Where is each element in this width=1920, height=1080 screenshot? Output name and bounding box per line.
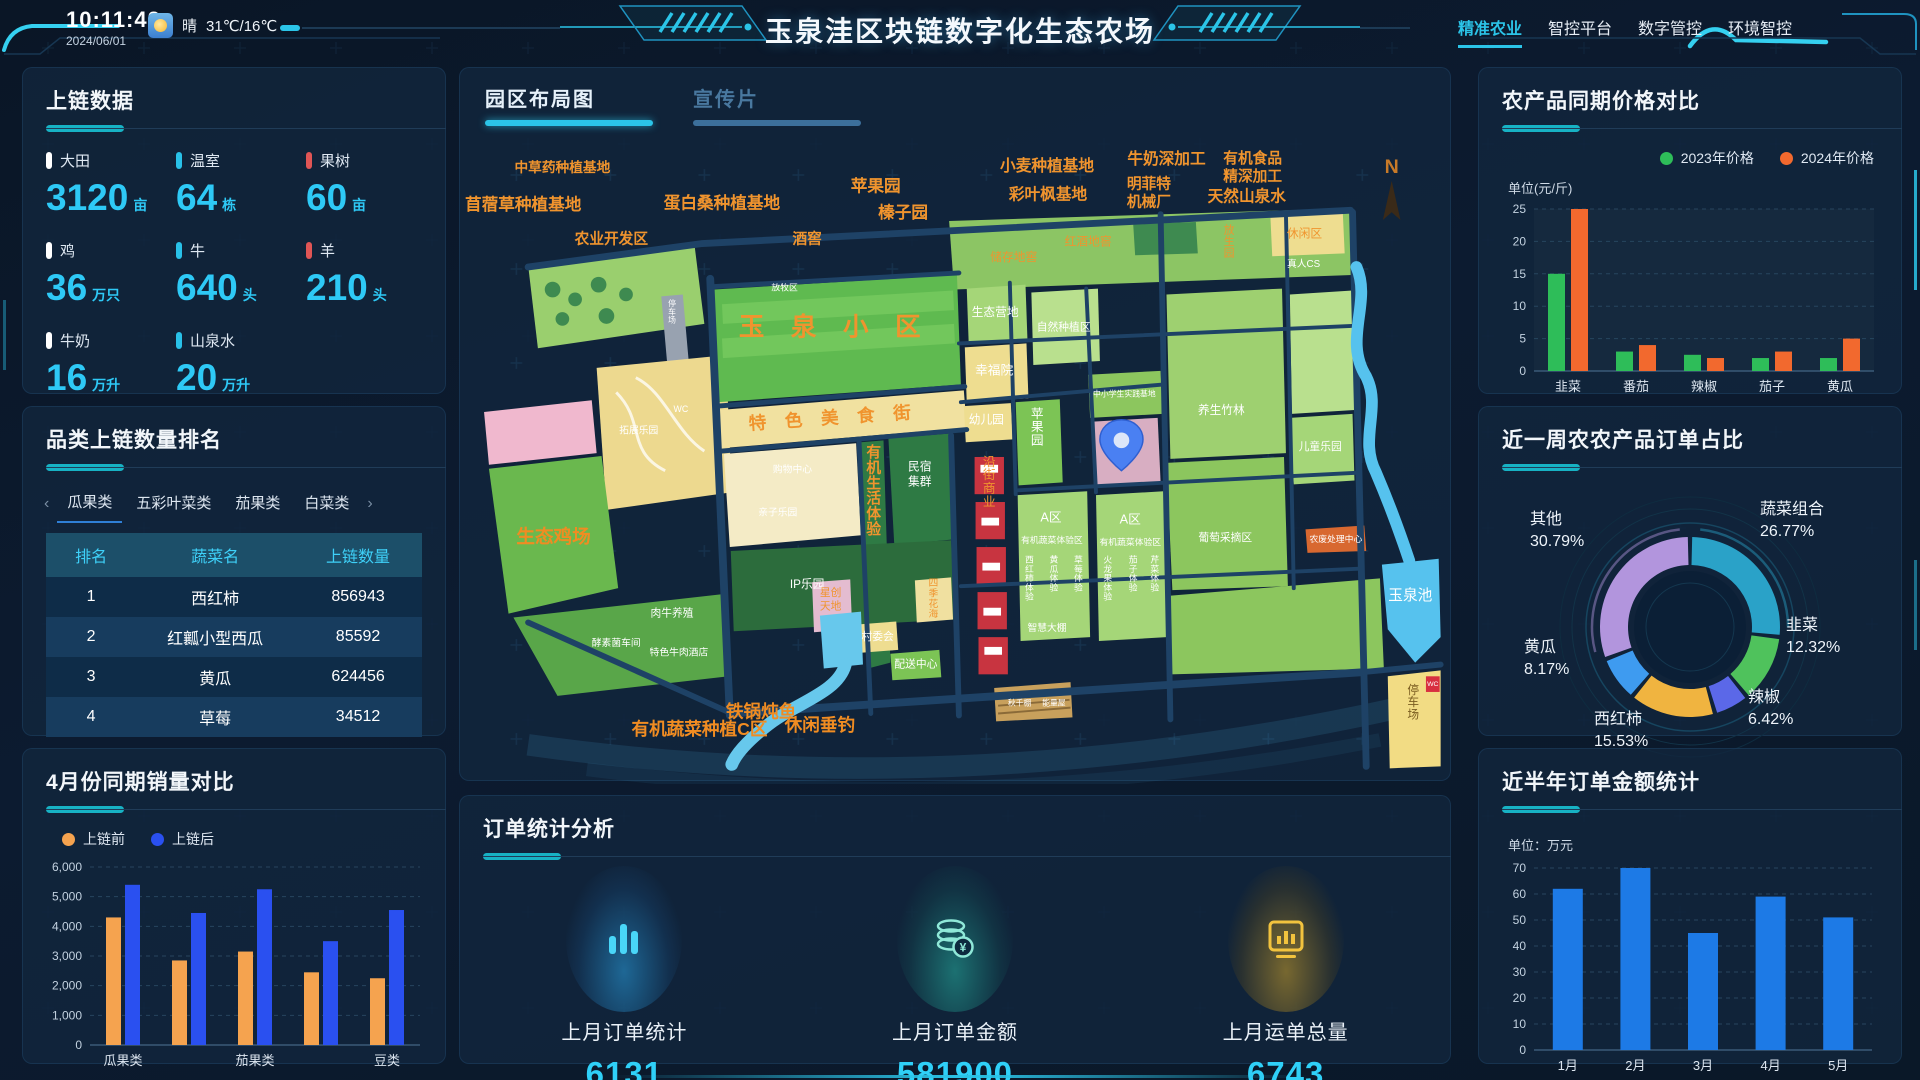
chart-svg: 0510152025韭菜番茄辣椒茄子黄瓜: [1494, 201, 1886, 405]
svg-text:韭菜: 韭菜: [1555, 379, 1581, 394]
map-label: 真人CS: [1287, 257, 1321, 270]
map-label: 蛋白桑种植基地: [664, 192, 781, 212]
item-unit: 万只: [92, 287, 120, 303]
svg-text:5月: 5月: [1828, 1058, 1848, 1073]
bar: [323, 941, 338, 1045]
bar: [106, 917, 121, 1045]
map-label: 配送中心: [894, 657, 937, 670]
chain-data-item: 羊210头: [306, 240, 436, 306]
column-header: 蔬菜名: [136, 543, 294, 567]
svg-text:番茄: 番茄: [1623, 379, 1649, 394]
chevron-right-icon[interactable]: ›: [363, 495, 376, 513]
item-label: 果树: [320, 150, 350, 171]
svg-text:0: 0: [1519, 1043, 1526, 1057]
panel-title: 订单统计分析: [459, 795, 1451, 843]
svg-text:70: 70: [1513, 861, 1527, 875]
item-value: 210头: [306, 269, 436, 306]
item-label: 温室: [190, 150, 220, 171]
chevron-left-icon[interactable]: ‹: [40, 495, 53, 513]
bar: [238, 952, 253, 1045]
map-label: 酒窖: [792, 230, 822, 248]
panel-ranking: 品类上链数量排名 ‹瓜果类五彩叶菜类茄果类白菜类› 排名蔬菜名上链数量1西红柿8…: [22, 406, 446, 736]
panel-map: 园区布局图 宣传片: [459, 67, 1451, 781]
table-cell: 红瓤小型西瓜: [136, 625, 294, 649]
map-label: 民宿: [908, 460, 931, 474]
item-marker: [306, 152, 312, 169]
bar: [304, 972, 319, 1045]
map-label: 能量屋: [1042, 698, 1066, 708]
order-stat-item: 上月运单总量6743: [1136, 866, 1436, 1080]
stat-label: 上月运单总量: [1223, 1016, 1349, 1045]
title-underline: [1502, 464, 1580, 471]
item-unit: 万升: [222, 377, 250, 393]
map-label: 红酒地窖: [1065, 234, 1112, 248]
table-row: 4草莓34512: [46, 697, 422, 737]
map-label: 茄子体验: [1129, 554, 1138, 593]
bar: [1620, 868, 1650, 1050]
map-label: 火龙果体验: [1103, 555, 1112, 602]
panel-title: 农产品同期价格对比: [1478, 67, 1902, 115]
table-cell: 624456: [294, 668, 422, 686]
table-cell: 85592: [294, 628, 422, 646]
map-label: 放牧区: [771, 282, 798, 293]
item-unit: 头: [243, 287, 257, 303]
map-label: 星创: [820, 586, 842, 599]
edge-tick: [1914, 560, 1917, 650]
bar: [1548, 274, 1565, 371]
svg-text:1月: 1月: [1558, 1058, 1578, 1073]
map-label: 养生竹林: [1198, 403, 1245, 417]
ranking-tab[interactable]: 茄果类: [225, 486, 290, 522]
bottom-accent-line: [610, 1075, 1310, 1078]
svg-text:2,000: 2,000: [52, 979, 82, 993]
map-label: 明菲特: [1127, 175, 1171, 193]
map-label: 农废处理中心: [1309, 533, 1362, 544]
donut-label: 黄瓜8.17%: [1524, 637, 1569, 680]
svg-text:0: 0: [1519, 364, 1526, 378]
item-label: 牛奶: [60, 330, 90, 351]
svg-text:30: 30: [1513, 965, 1527, 979]
legend-item: 2023年价格: [1660, 148, 1754, 168]
bar: [1688, 933, 1718, 1050]
table-header: 排名蔬菜名上链数量: [46, 533, 422, 577]
nav-item[interactable]: 智控平台: [1548, 15, 1612, 48]
map-label: 草莓体验: [1074, 554, 1083, 593]
title-underline: [1502, 125, 1580, 132]
item-unit: 亩: [133, 197, 147, 213]
map-label: 苹果园: [1031, 406, 1044, 448]
nav-item[interactable]: 环境智控: [1728, 15, 1792, 48]
tab-underline: [485, 120, 653, 126]
map-label: 有机蔬菜体验区: [1021, 534, 1083, 545]
bar: [172, 960, 187, 1045]
table-cell: 1: [46, 588, 136, 606]
svg-text:瓜果类: 瓜果类: [103, 1053, 142, 1068]
chart-svg: 01,0002,0003,0004,0005,0006,000瓜果类茄果类豆类: [38, 853, 430, 1079]
svg-text:茄果类: 茄果类: [235, 1053, 274, 1068]
chain-data-item: 山泉水20万升: [176, 330, 306, 396]
map-label: 玉 泉 小 区: [739, 313, 931, 342]
svg-text:60: 60: [1513, 887, 1527, 901]
table-cell: 4: [46, 708, 136, 726]
map-label: WC: [674, 404, 689, 414]
map-label: 芹菜体验: [1150, 555, 1159, 593]
map-label: 村委会: [862, 630, 895, 643]
item-value: 64栋: [176, 179, 306, 216]
column-header: 排名: [46, 543, 136, 567]
panel-title: 近一周农农产品订单占比: [1478, 406, 1902, 454]
svg-text:黄瓜: 黄瓜: [1827, 379, 1853, 394]
map-label: 集群: [908, 474, 932, 488]
monitor-icon: [1228, 866, 1344, 1012]
edge-tick: [3, 300, 6, 370]
item-value: 3120亩: [46, 179, 176, 216]
column-header: 上链数量: [294, 543, 422, 567]
map-label: WC: [1427, 681, 1438, 688]
item-marker: [46, 332, 52, 349]
item-value: 20万升: [176, 359, 306, 396]
item-value: 60亩: [306, 179, 436, 216]
map-label: 儿童乐园: [1299, 440, 1342, 453]
map-label: 精深加工: [1223, 167, 1282, 185]
map-label: 农业开发区: [574, 230, 649, 248]
item-value: 36万只: [46, 269, 176, 306]
map-label: 拓展乐园: [619, 424, 658, 436]
chart-unit-label: 单位(元/斤): [1478, 168, 1902, 197]
legend-dot-icon: [151, 833, 164, 846]
svg-text:3月: 3月: [1693, 1058, 1713, 1073]
map-label: 牛奶深加工: [1127, 149, 1206, 168]
panel-title: 近半年订单金额统计: [1478, 748, 1902, 796]
chain-data-grid: 大田3120亩温室64栋果树60亩鸡36万只牛640头羊210头牛奶16万升山泉…: [22, 132, 446, 396]
svg-text:茄子: 茄子: [1759, 379, 1785, 394]
map-label: 肉牛养殖: [651, 607, 694, 620]
bar: [1553, 889, 1583, 1050]
bar: [1684, 355, 1701, 371]
map-label: 亲子乐园: [758, 506, 797, 519]
legend-dot-icon: [62, 833, 75, 846]
price-legend: 2023年价格2024年价格: [1478, 132, 1902, 168]
chain-data-item: 温室64栋: [176, 150, 306, 216]
chain-data-item: 果树60亩: [306, 150, 436, 216]
svg-text:6,000: 6,000: [52, 860, 82, 874]
map-label: 机械厂: [1127, 192, 1171, 210]
map-label: 四季花海: [929, 578, 939, 620]
svg-text:5,000: 5,000: [52, 890, 82, 904]
map-label: 幼儿园: [969, 414, 1004, 427]
donut-label: 辣椒6.42%: [1748, 687, 1793, 730]
ranking-tabs: ‹瓜果类五彩叶菜类茄果类白菜类›: [40, 485, 428, 523]
map-label: 秋千棚: [1008, 698, 1032, 708]
item-value: 16万升: [46, 359, 176, 396]
svg-text:5: 5: [1519, 332, 1526, 346]
svg-text:1,000: 1,000: [52, 1008, 82, 1022]
chain-data-item: 牛640头: [176, 240, 306, 306]
bar: [1752, 358, 1769, 371]
map-label: 西红柿体验: [1025, 555, 1034, 602]
bar: [1707, 358, 1724, 371]
order-stat-item: 上月订单统计6131: [474, 866, 774, 1080]
top-nav: 精准农业智控平台数字管控环境智控: [1458, 15, 1792, 48]
map-label: 自然种植区: [1037, 321, 1091, 334]
donut-label: 蔬菜组合26.77%: [1760, 499, 1824, 542]
legend-item: 2024年价格: [1780, 148, 1874, 168]
svg-text:10: 10: [1513, 299, 1527, 313]
map-label: 有机蔬菜种植C区: [631, 719, 767, 739]
map-label: A区: [1120, 512, 1141, 527]
item-unit: 头: [373, 287, 387, 303]
table-cell: 草莓: [136, 705, 294, 729]
map-label: 有机食品: [1223, 149, 1282, 167]
bar: [389, 910, 404, 1045]
map-label: 中小学生实践基地: [1093, 388, 1156, 398]
tab-promo-video[interactable]: 宣传片: [693, 83, 861, 126]
item-value: 640头: [176, 269, 306, 306]
map-label: 苜蓿草种植基地: [465, 194, 582, 214]
item-marker: [306, 242, 312, 259]
bar: [191, 913, 206, 1045]
donut-label: 韭菜12.32%: [1786, 615, 1840, 658]
nav-item[interactable]: 精准农业: [1458, 15, 1522, 48]
donut-label: 西红柿15.53%: [1594, 709, 1648, 752]
item-marker: [176, 332, 182, 349]
half-year-chart: 0102030405060701月2月3月4月5月: [1478, 854, 1902, 1080]
bar: [370, 978, 385, 1045]
map-label: 停车场: [1407, 683, 1419, 722]
table-cell: 2: [46, 628, 136, 646]
svg-text:4月: 4月: [1760, 1058, 1780, 1073]
item-unit: 亩: [352, 197, 366, 213]
table-row: 2红瓤小型西瓜85592: [46, 617, 422, 657]
bar: [1616, 352, 1633, 371]
map-label: A区: [1040, 510, 1061, 525]
ranking-tab[interactable]: 瓜果类: [57, 485, 122, 523]
map-tabs: 园区布局图 宣传片: [459, 67, 1451, 126]
svg-text:10: 10: [1513, 1017, 1527, 1031]
bar: [1775, 352, 1792, 371]
map-label: 有机蔬菜体验区: [1099, 536, 1161, 547]
panel-chain-data: 上链数据 大田3120亩温室64栋果树60亩鸡36万只牛640头羊210头牛奶1…: [22, 67, 446, 394]
svg-text:0: 0: [75, 1038, 82, 1052]
chain-data-item: 鸡36万只: [46, 240, 176, 306]
legend-dot-icon: [1780, 152, 1793, 165]
svg-text:25: 25: [1513, 202, 1527, 216]
svg-text:15: 15: [1513, 267, 1527, 281]
order-stat-items: 上月订单统计6131¥上月订单金额581900上月运单总量6743: [459, 860, 1451, 1080]
item-unit: 栋: [222, 197, 236, 213]
svg-text:50: 50: [1513, 913, 1527, 927]
chain-data-item: 大田3120亩: [46, 150, 176, 216]
donut-label: 其他30.79%: [1530, 509, 1584, 552]
chart-svg: 0102030405060701月2月3月4月5月: [1494, 858, 1886, 1080]
price-compare-chart: 0510152025韭菜番茄辣椒茄子黄瓜: [1478, 197, 1902, 410]
april-legend: 上链前上链后: [22, 813, 446, 849]
nav-item[interactable]: 数字管控: [1638, 15, 1702, 48]
bar: [1823, 917, 1853, 1050]
bar: [1571, 209, 1588, 371]
svg-text:¥: ¥: [960, 941, 967, 955]
item-label: 大田: [60, 150, 90, 171]
item-label: 羊: [320, 240, 335, 261]
item-marker: [46, 242, 52, 259]
map-label: 苹果园: [851, 176, 901, 196]
panel-april-sales: 4月份同期销量对比 上链前上链后 01,0002,0003,0004,0005,…: [22, 748, 446, 1064]
table-cell: 黄瓜: [136, 665, 294, 689]
title-underline: [46, 464, 124, 471]
chart-unit-label: 单位：万元: [1478, 813, 1902, 854]
svg-text:豆类: 豆类: [374, 1053, 400, 1068]
table-cell: 34512: [294, 708, 422, 726]
map-label: 停车场: [668, 298, 676, 324]
header: 10:11:42 2024/06/01 晴 31℃/16℃ 玉泉洼区块链数字化生…: [0, 0, 1920, 56]
table-cell: 856943: [294, 588, 422, 606]
park-layout-map: 中草药种植基地苜蓿草种植基地蛋白桑种植基地农业开发区酒窖苹果园榛子园小麦种植基地…: [459, 128, 1451, 784]
legend-item: 上链后: [151, 829, 214, 849]
map-label: 储存地窖: [990, 250, 1037, 264]
svg-text:辣椒: 辣椒: [1691, 379, 1717, 394]
map-label: 葡萄采摘区: [1198, 531, 1252, 544]
map-label: 有机生活体验: [866, 443, 881, 538]
svg-text:3,000: 3,000: [52, 949, 82, 963]
april-sales-chart: 01,0002,0003,0004,0005,0006,000瓜果类茄果类豆类: [22, 849, 446, 1080]
map-label: 幸福院: [975, 363, 1013, 378]
item-label: 鸡: [60, 240, 75, 261]
bar: [257, 889, 272, 1045]
item-marker: [176, 152, 182, 169]
legend-item: 上链前: [62, 829, 125, 849]
item-marker: [176, 242, 182, 259]
map-label: 玉泉池: [1388, 587, 1432, 604]
panel-order-stats: 订单统计分析 上月订单统计6131¥上月订单金额581900上月运单总量6743: [459, 795, 1451, 1064]
svg-text:20: 20: [1513, 234, 1527, 248]
map-label: N: [1385, 156, 1399, 178]
ranking-tab[interactable]: 白菜类: [294, 486, 359, 522]
item-marker: [46, 152, 52, 169]
chain-data-item: 牛奶16万升: [46, 330, 176, 396]
stat-label: 上月订单统计: [561, 1016, 687, 1045]
map-label: 购物中心: [773, 463, 812, 476]
map-label: 生态营地: [972, 305, 1019, 319]
title-underline: [46, 125, 124, 132]
map-label: 天然山泉水: [1208, 186, 1287, 205]
stat-label: 上月订单金额: [892, 1016, 1018, 1045]
map-label: 智慧大棚: [1027, 621, 1066, 634]
bar: [125, 885, 140, 1045]
tab-park-layout[interactable]: 园区布局图: [485, 83, 653, 126]
map-label: 生态鸡场: [516, 526, 590, 547]
table-row: 1西红柿856943: [46, 577, 422, 617]
bar: [1639, 345, 1656, 371]
table-cell: 西红柿: [136, 585, 294, 609]
map-label: 中草药种植基地: [514, 159, 610, 175]
title-underline: [46, 806, 124, 813]
item-label: 山泉水: [190, 330, 235, 351]
bar-chart-icon: [566, 866, 682, 1012]
svg-text:40: 40: [1513, 939, 1527, 953]
tab-underline: [693, 120, 861, 126]
map-label: 小麦种植基地: [1000, 156, 1094, 175]
panel-title: 品类上链数量排名: [22, 406, 446, 454]
map-label: 酵素菌车间: [592, 636, 641, 649]
bar: [1756, 897, 1786, 1050]
map-label: 沿街商业: [983, 454, 996, 509]
svg-text:4,000: 4,000: [52, 919, 82, 933]
coins-icon: ¥: [897, 866, 1013, 1012]
title-underline: [483, 853, 561, 860]
table-cell: 3: [46, 668, 136, 686]
svg-text:2月: 2月: [1625, 1058, 1645, 1073]
map-label: 黄瓜体验: [1049, 554, 1058, 593]
bar: [1820, 358, 1837, 371]
item-label: 牛: [190, 240, 205, 261]
svg-text:20: 20: [1513, 991, 1527, 1005]
ranking-tab[interactable]: 五彩叶菜类: [126, 486, 221, 522]
map-label: 彩叶枫基地: [1008, 184, 1088, 203]
panel-order-share: 近一周农农产品订单占比 蔬菜组合26.77%韭菜12.32%辣椒6.42%西红柿…: [1478, 406, 1902, 736]
table-row: 3黄瓜624456: [46, 657, 422, 697]
order-share-donut: 蔬菜组合26.77%韭菜12.32%辣椒6.42%西红柿15.53%黄瓜8.17…: [1502, 475, 1878, 777]
panel-half-year: 近半年订单金额统计 单位：万元 0102030405060701月2月3月4月5…: [1478, 748, 1902, 1064]
map-label: 休闲区: [1287, 227, 1322, 241]
item-unit: 万升: [92, 377, 120, 393]
edge-tick: [1914, 170, 1917, 290]
map-label: 特色牛肉酒店: [650, 646, 709, 659]
bar: [1843, 339, 1860, 371]
panel-title: 4月份同期销量对比: [22, 748, 446, 796]
ranking-table: 排名蔬菜名上链数量1西红柿8569432红瓤小型西瓜855923黄瓜624456…: [46, 533, 422, 737]
map-label: 榛子园: [878, 202, 928, 222]
legend-dot-icon: [1660, 152, 1673, 165]
order-stat-item: ¥上月订单金额581900: [805, 866, 1105, 1080]
dashboard: 10:11:42 2024/06/01 晴 31℃/16℃ 玉泉洼区块链数字化生…: [0, 0, 1920, 1080]
map-label: 休闲垂钓: [784, 715, 855, 735]
panel-price-compare: 农产品同期价格对比 2023年价格2024年价格 单位(元/斤) 0510152…: [1478, 67, 1902, 394]
map-label: 天地: [820, 600, 842, 613]
map-label: 放生园: [1224, 224, 1235, 260]
title-underline: [1502, 806, 1580, 813]
panel-title: 上链数据: [22, 67, 446, 115]
